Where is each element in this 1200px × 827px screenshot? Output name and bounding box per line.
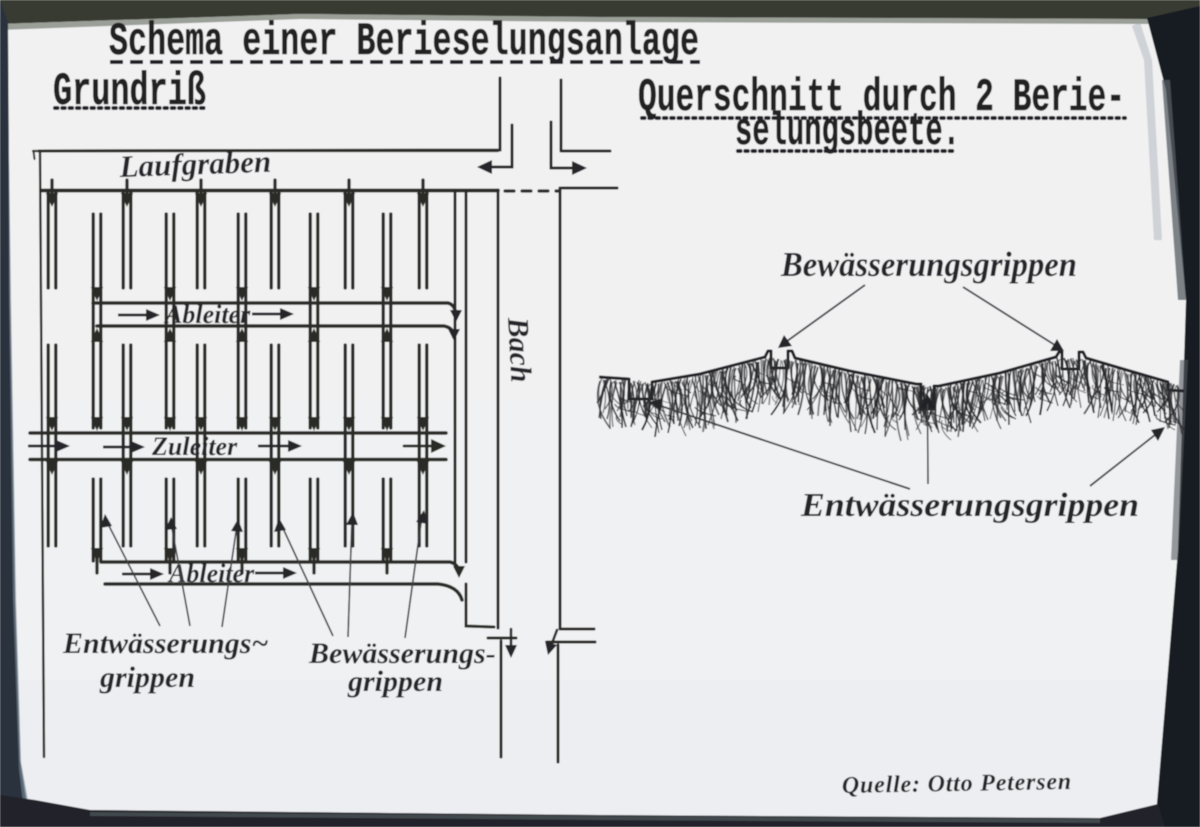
svg-text:Bewässerungsgrippen: Bewässerungsgrippen	[780, 245, 1077, 284]
svg-text:Quelle: Otto Petersen: Quelle: Otto Petersen	[842, 769, 1073, 799]
svg-text:Grundriß: Grundriß	[53, 66, 206, 118]
svg-text:grippen: grippen	[347, 665, 443, 698]
svg-text:Ableiter: Ableiter	[163, 300, 251, 329]
svg-text:Zuleiter: Zuleiter	[151, 432, 238, 461]
svg-text:Laufgraben: Laufgraben	[118, 144, 272, 184]
svg-text:Bach: Bach	[501, 316, 537, 384]
svg-text:grippen: grippen	[99, 661, 195, 694]
svg-text:Entwässerungs~: Entwässerungs~	[62, 627, 269, 660]
svg-text:Entwässerungsgrippen: Entwässerungsgrippen	[800, 487, 1139, 524]
